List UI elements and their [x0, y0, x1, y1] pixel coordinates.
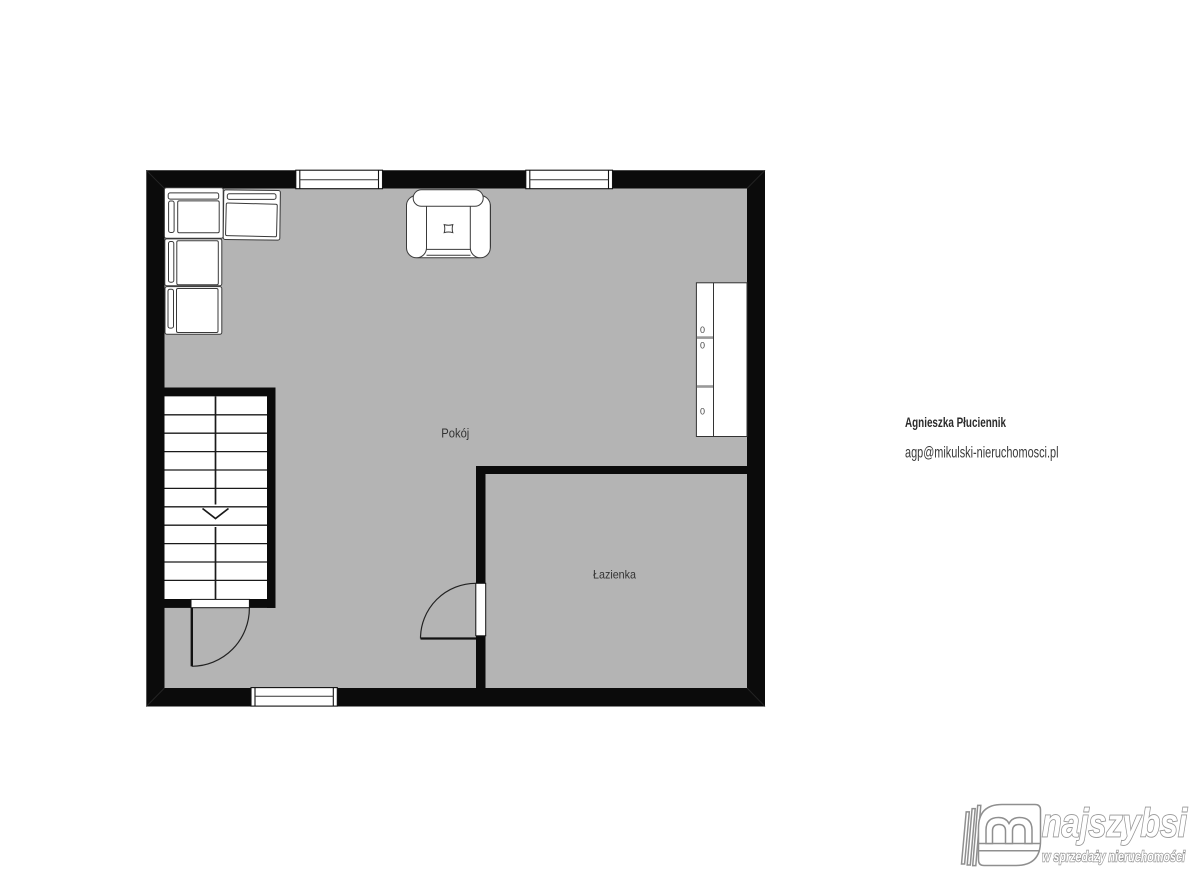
svg-text:najszybsi: najszybsi: [1042, 802, 1188, 846]
svg-text:Łazienka: Łazienka: [593, 567, 636, 581]
svg-text:w sprzedaży nieruchomości: w sprzedaży nieruchomości: [1042, 850, 1186, 866]
svg-text:Pokój: Pokój: [441, 427, 469, 441]
svg-text:0: 0: [700, 407, 705, 417]
svg-text:0: 0: [700, 325, 705, 335]
svg-text:0: 0: [700, 341, 705, 351]
svg-text:agp@mikulski-nieruchomosci.pl: agp@mikulski-nieruchomosci.pl: [905, 445, 1059, 462]
svg-text:Agnieszka Płuciennik: Agnieszka Płuciennik: [905, 415, 1006, 430]
